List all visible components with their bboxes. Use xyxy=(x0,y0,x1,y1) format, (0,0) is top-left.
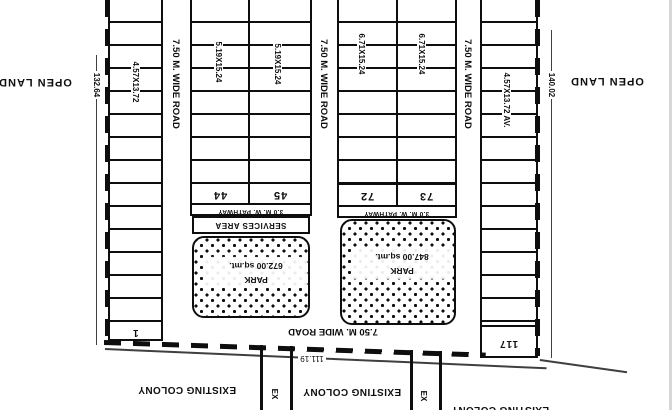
plot-45-cell: 45 xyxy=(250,182,310,205)
plot-44-number: 44 xyxy=(213,189,227,201)
ex-road-1-label: EX xyxy=(269,382,281,406)
road-1-label: 7.50 M. WIDE ROAD xyxy=(169,19,183,149)
park-c-name: PARK xyxy=(356,263,448,277)
park-b-area: 672.00 sq.mt. xyxy=(210,258,302,272)
boundary-right xyxy=(535,0,540,356)
park-b-name: PARK xyxy=(210,272,302,286)
plot-block-b: 44 45 3.0 M. W. PATHWAY xyxy=(190,0,312,216)
plot-72-number: 72 xyxy=(360,190,374,202)
open-land-left-label: OPEN LAND xyxy=(0,74,90,90)
plot-45-number: 45 xyxy=(273,189,287,201)
plot-73-number: 73 xyxy=(419,190,433,202)
plot-44-cell: 44 xyxy=(192,182,248,205)
open-land-right-label: OPEN LAND xyxy=(552,73,662,89)
services-area-label: SERVICES AREA xyxy=(215,221,286,230)
boundary-left xyxy=(105,0,110,341)
dimension-left-label: 132.64 xyxy=(90,55,104,115)
park-c-area: 847.00 sq.mt. xyxy=(356,249,448,263)
plot-size-label-b1: 5.19X15.24 xyxy=(212,0,226,127)
colony-road-2-right-line xyxy=(439,351,442,410)
road-bottom-label: 7.50 M. WIDE ROAD xyxy=(261,325,405,338)
dimension-right-label: 140.02 xyxy=(545,55,559,115)
plot-size-label-c2: 6.71X15.24 xyxy=(415,0,429,119)
pathway-c: 3.0 M. W. PATHWAY xyxy=(339,205,455,220)
dimension-bottom-label: 111.19 xyxy=(287,354,337,364)
colony-road-2-left-line xyxy=(410,350,413,410)
pathway-b-label: 3.0 M. W. PATHWAY xyxy=(218,208,283,215)
road-2-label: 7.50 M. WIDE ROAD xyxy=(317,19,331,149)
plot-73-cell: 73 xyxy=(398,183,455,207)
plot-size-label-d: 4.57X13.72 AV. xyxy=(500,35,514,165)
colony-boundary-tail xyxy=(540,359,627,373)
plot-1-number: 1 xyxy=(132,327,139,338)
park-b-label: PARK 672.00 sq.mt. xyxy=(205,257,307,288)
road-3-label: 7.50 M. WIDE ROAD xyxy=(461,19,475,149)
services-area-box: SERVICES AREA xyxy=(192,216,310,234)
plot-size-label-a: 4.57X13.72 xyxy=(129,17,143,147)
plot-117-number: 117 xyxy=(499,338,518,349)
existing-colony-label-1: EXISTING COLONY xyxy=(117,383,257,397)
existing-colony-label-3: EXISTING COLONY xyxy=(430,403,570,410)
colony-road-1-left-line xyxy=(260,345,263,410)
existing-colony-label-2: EXISTING COLONY xyxy=(282,385,422,399)
plot-size-label-b2: 5.19X15.24 xyxy=(271,0,285,129)
plot-size-label-c1: 6.71X15.24 xyxy=(355,0,369,119)
plot-72-cell: 72 xyxy=(339,183,396,207)
site-plan-drawing: OPEN LAND OPEN LAND 132.64 140.02 1 4.57… xyxy=(0,0,672,410)
plot-117-cell: 117 xyxy=(482,325,536,360)
pathway-c-label: 3.0 M. W. PATHWAY xyxy=(364,210,429,217)
colony-road-1-right-line xyxy=(290,346,293,410)
park-c-label: PARK 847.00 sq.mt. xyxy=(351,248,453,279)
